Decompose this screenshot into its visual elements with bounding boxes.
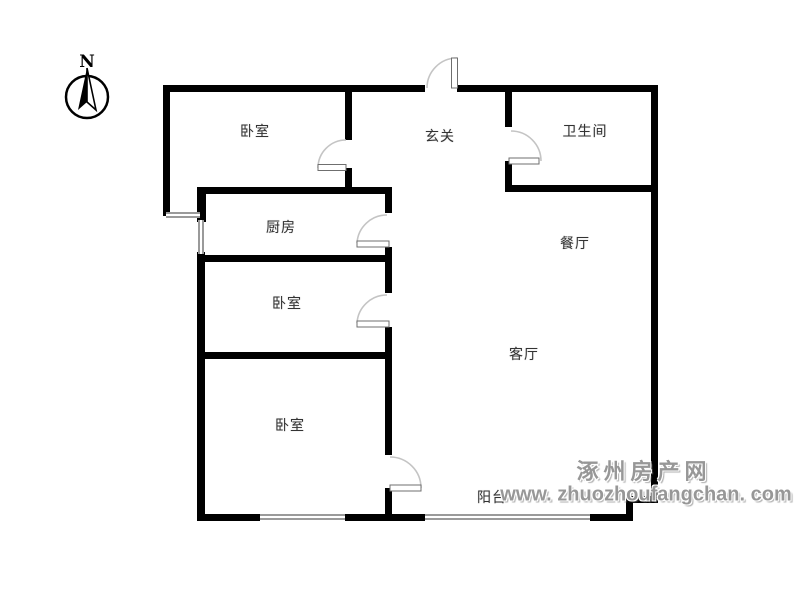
wall-segment — [197, 255, 392, 262]
wall-segment — [197, 252, 205, 521]
window-bedroom-bottom — [260, 514, 345, 520]
wall-segment — [345, 92, 352, 140]
wall-segment — [505, 185, 658, 192]
door-bedroom-bottom — [387, 453, 427, 494]
wall-segment — [385, 187, 392, 213]
room-label-kitchen: 厨房 — [266, 217, 296, 237]
wall-segment — [457, 85, 658, 92]
room-label-hallway: 玄关 — [425, 126, 455, 146]
wall-segment — [197, 352, 392, 359]
room-label-bedroom-bottom: 卧室 — [275, 415, 305, 435]
wall-segment — [505, 92, 512, 127]
room-label-dining: 餐厅 — [560, 233, 590, 253]
wall-segment — [651, 85, 658, 503]
watermark-site-name: 涿州房产网 — [576, 454, 711, 486]
wall-segment — [197, 187, 392, 194]
room-label-bedroom-middle: 卧室 — [272, 293, 302, 313]
room-label-living: 客厅 — [509, 344, 539, 364]
window-kitchen-corner-v — [198, 220, 204, 254]
window-kitchen-corner-h — [166, 212, 200, 218]
watermark-site-url: www. zhuozhoufangchan. com — [500, 484, 791, 507]
floorplan: N — [0, 0, 800, 600]
wall-segment — [163, 85, 170, 216]
door-bathroom — [505, 123, 545, 167]
wall-segment — [385, 352, 392, 455]
door-main-entrance — [423, 54, 461, 94]
room-label-bathroom: 卫生间 — [563, 121, 608, 141]
door-bedroom-middle — [353, 291, 393, 331]
room-label-bedroom-top: 卧室 — [240, 121, 270, 141]
compass-north-icon: N — [60, 50, 118, 122]
window-balcony — [425, 514, 590, 520]
wall-segment — [163, 85, 425, 92]
door-kitchen — [353, 211, 393, 251]
wall-segment — [197, 514, 260, 521]
wall-segment — [385, 255, 392, 293]
door-bedroom-top — [314, 136, 352, 174]
